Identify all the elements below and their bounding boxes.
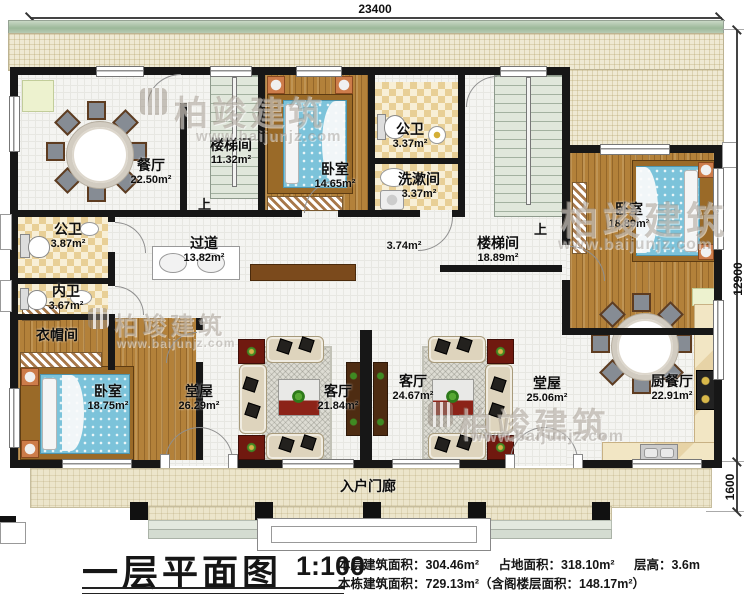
room-area: 26.29m² bbox=[163, 400, 235, 412]
terrace-top-right bbox=[566, 69, 724, 149]
room-label-stair2: 楼梯间 18.89m² bbox=[462, 236, 534, 264]
wall bbox=[368, 158, 465, 164]
side-table bbox=[238, 435, 265, 460]
entry-step-center-inner bbox=[271, 526, 477, 543]
chair bbox=[46, 142, 65, 161]
room-area: 21.84m² bbox=[303, 400, 373, 412]
dimension-right-value: 12900 bbox=[731, 249, 745, 309]
dimension-line-top bbox=[30, 17, 722, 19]
room-name: 入户门廊 bbox=[308, 479, 428, 495]
room-area: 13.82m² bbox=[170, 252, 238, 264]
window bbox=[713, 300, 724, 380]
nightstand bbox=[698, 162, 714, 178]
sink-basin bbox=[660, 448, 674, 458]
watermark-url: www.baijunjz.com bbox=[116, 336, 236, 350]
sink-basin bbox=[644, 448, 658, 458]
wall bbox=[352, 460, 392, 468]
wall bbox=[562, 328, 714, 335]
cloak-rack bbox=[20, 352, 102, 368]
wall bbox=[578, 460, 632, 468]
room-name: 堂屋 bbox=[163, 384, 235, 400]
window-sill bbox=[0, 214, 12, 250]
stat-floor-height: 层高：3.6m bbox=[634, 558, 700, 572]
stair-up-label: 上 bbox=[534, 219, 547, 238]
room-label-hallway: 过道 13.82m² bbox=[170, 236, 238, 264]
room-area: 11.32m² bbox=[195, 154, 267, 166]
porch-column bbox=[130, 502, 148, 520]
watermark-url: www.baijunjz.com bbox=[196, 128, 341, 145]
stats-line-1: 本层建筑面积：304.46m² 占地面积：318.10m² 层高：3.6m bbox=[338, 554, 716, 573]
room-name: 堂屋 bbox=[512, 376, 582, 392]
bed-pillow bbox=[42, 378, 57, 450]
title-underline bbox=[82, 587, 344, 594]
nightstand bbox=[335, 76, 353, 94]
wall bbox=[338, 210, 368, 217]
stat-total-area: 本栋建筑面积：729.13m²（含阁楼层面积：148.17m²） bbox=[338, 577, 645, 591]
room-label-bath2: 公卫 3.37m² bbox=[382, 122, 438, 150]
wall bbox=[458, 75, 465, 217]
watermark-url: www.baijunjz.com bbox=[558, 236, 712, 254]
sofa bbox=[239, 364, 267, 434]
stair-rail bbox=[526, 77, 531, 205]
chair bbox=[632, 293, 651, 312]
stat-floor-area: 本层建筑面积：304.46m² bbox=[338, 558, 479, 572]
room-name: 楼梯间 bbox=[462, 236, 534, 252]
room-area: 3.37m² bbox=[385, 188, 453, 200]
window bbox=[96, 66, 144, 77]
window bbox=[210, 66, 252, 77]
side-table bbox=[487, 339, 514, 364]
room-name: 公卫 bbox=[40, 222, 96, 238]
wall bbox=[562, 280, 570, 335]
wall bbox=[260, 210, 302, 217]
room-name: 过道 bbox=[170, 236, 238, 252]
floor-plan-canvas: 23400 bbox=[0, 0, 750, 597]
window bbox=[9, 96, 20, 152]
room-area: 14.65m² bbox=[300, 178, 370, 190]
wall bbox=[10, 67, 570, 75]
room-name: 公卫 bbox=[382, 122, 438, 138]
window bbox=[9, 388, 20, 448]
wall bbox=[700, 460, 722, 468]
wall bbox=[440, 265, 562, 272]
room-label-washroom: 洗漱间 3.37m² bbox=[385, 172, 453, 200]
room-label-living1: 客厅 21.84m² bbox=[303, 384, 373, 412]
room-name: 厨餐厅 bbox=[634, 374, 710, 390]
wall bbox=[108, 252, 115, 286]
wall bbox=[368, 210, 420, 217]
room-label-bath1: 公卫 3.87m² bbox=[40, 222, 96, 250]
room-label-bedroom2: 卧室 14.65m² bbox=[300, 162, 370, 190]
room-name: 卧室 bbox=[300, 162, 370, 178]
room-label-ensuite: 内卫 3.67m² bbox=[38, 284, 94, 312]
nightstand bbox=[21, 368, 39, 386]
room-label-kitchen: 厨餐厅 22.91m² bbox=[634, 374, 710, 402]
watermark-url: www.baijunjz.com bbox=[470, 428, 624, 446]
room-label-porch: 入户门廊 bbox=[308, 479, 428, 495]
building-logo-icon bbox=[88, 308, 109, 329]
room-area: 3.37m² bbox=[382, 138, 438, 150]
room-label-cloak: 衣帽间 bbox=[25, 328, 89, 344]
room-name: 内卫 bbox=[38, 284, 94, 300]
dimension-porch-value: 1600 bbox=[723, 459, 737, 515]
room-name: 衣帽间 bbox=[25, 328, 89, 344]
window bbox=[600, 144, 670, 155]
cabinet bbox=[22, 80, 54, 112]
room-area: 3.87m² bbox=[40, 238, 96, 250]
room-name: 卧室 bbox=[72, 384, 144, 400]
window-sill bbox=[722, 142, 737, 168]
wall bbox=[368, 75, 375, 217]
wall bbox=[232, 460, 282, 468]
nightstand bbox=[21, 440, 39, 458]
window bbox=[500, 66, 547, 77]
wall bbox=[108, 210, 115, 222]
room-label-passage: 3.74m² bbox=[378, 240, 430, 252]
building-logo-icon bbox=[428, 402, 453, 427]
room-area: 3.67m² bbox=[38, 300, 94, 312]
room-name: 客厅 bbox=[303, 384, 373, 400]
porch-column bbox=[592, 502, 610, 520]
window-sill bbox=[0, 280, 12, 312]
room-area: 22.91m² bbox=[634, 390, 710, 402]
room-area: 22.50m² bbox=[105, 174, 197, 186]
stair-up-label: 上 bbox=[198, 194, 211, 213]
room-area: 24.67m² bbox=[378, 390, 448, 402]
building-logo-icon bbox=[140, 88, 167, 115]
stats-line-2: 本栋建筑面积：729.13m²（含阁楼层面积：148.17m²） bbox=[338, 573, 661, 592]
room-area: 18.89m² bbox=[462, 252, 534, 264]
room-name: 餐厅 bbox=[105, 158, 197, 174]
wall bbox=[562, 67, 570, 153]
wall bbox=[458, 460, 510, 468]
console-table bbox=[250, 264, 356, 281]
room-area: 18.75m² bbox=[72, 400, 144, 412]
room-label-hall1: 堂屋 26.29m² bbox=[163, 384, 235, 412]
room-label-living2: 客厅 24.67m² bbox=[378, 374, 448, 402]
stat-footprint-area: 占地面积：318.10m² bbox=[499, 558, 615, 572]
wall bbox=[10, 460, 62, 468]
room-name: 洗漱间 bbox=[385, 172, 453, 188]
room-label-bedroom1: 卧室 18.75m² bbox=[72, 384, 144, 412]
room-label-dining: 餐厅 22.50m² bbox=[105, 158, 197, 186]
side-table bbox=[238, 339, 265, 364]
chair bbox=[87, 101, 106, 120]
dimension-line-right bbox=[736, 30, 738, 462]
loveseat bbox=[266, 336, 324, 363]
dimension-top-value: 23400 bbox=[340, 2, 410, 16]
chair bbox=[591, 334, 610, 353]
room-name: 客厅 bbox=[378, 374, 448, 390]
window bbox=[296, 66, 342, 77]
round-table bbox=[612, 314, 678, 380]
side-step bbox=[0, 522, 26, 544]
wall bbox=[10, 210, 260, 217]
extension-line bbox=[722, 29, 744, 30]
